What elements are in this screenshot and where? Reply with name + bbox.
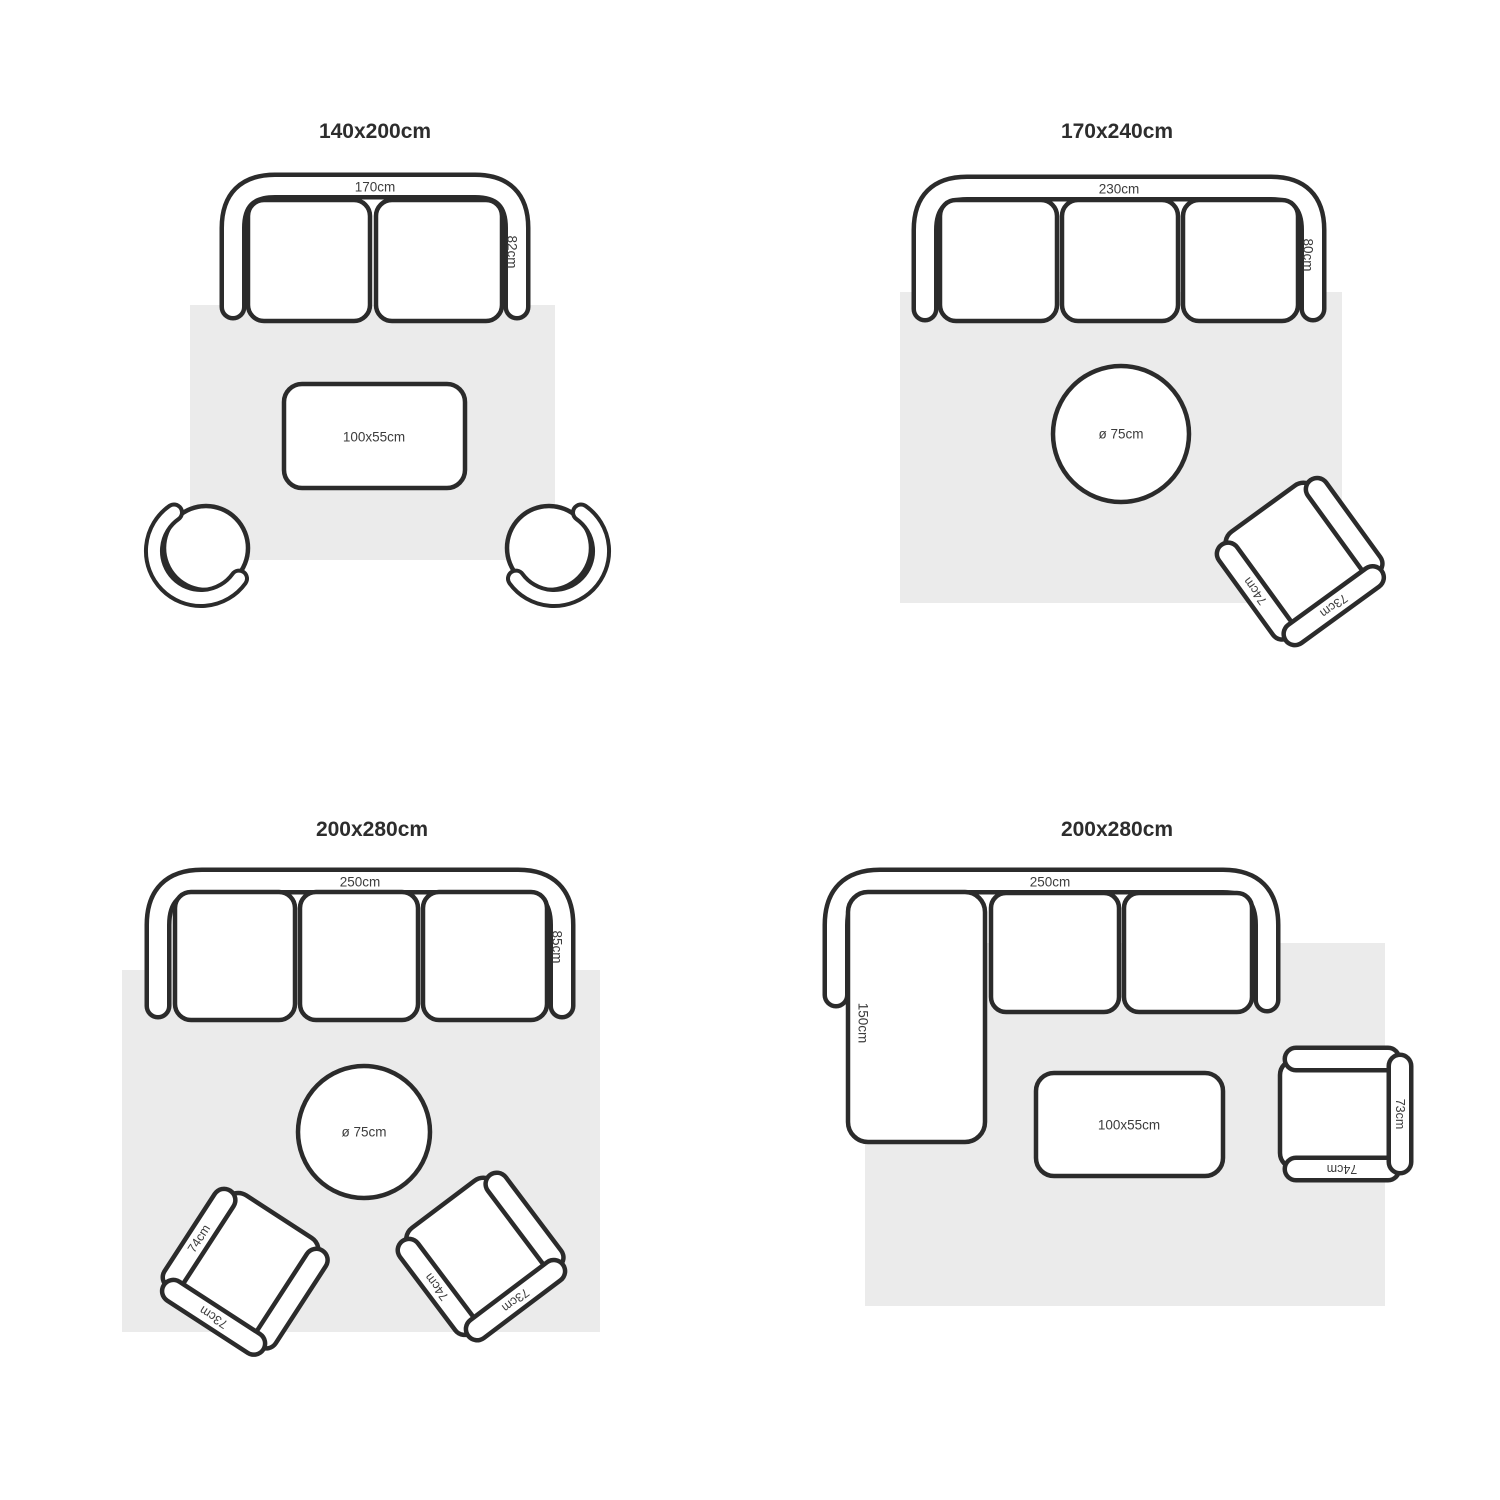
rug-size-guide-diagram: 140x200cm 170cm 82cm 100x55cm 170x240cm — [0, 0, 1500, 1500]
coffee-table: 100x55cm — [1036, 1073, 1223, 1176]
panel-140x200: 140x200cm 170cm 82cm 100x55cm — [154, 120, 601, 598]
table-size-label: ø 75cm — [1098, 427, 1143, 442]
panel-200x280-sofa: 200x280cm 250cm 85cm ø 75cm 74cm 73cm — [122, 818, 600, 1353]
size-title: 140x200cm — [319, 120, 431, 143]
seat-cushion — [248, 200, 370, 321]
panel-200x280-sectional: 200x280cm 250cm 150cm 100x55cm 74cm 73cm — [836, 818, 1407, 1306]
seat-cushion — [376, 200, 502, 321]
sofa-width-label: 250cm — [340, 875, 381, 890]
armchair: 74cm 73cm — [1280, 1059, 1407, 1176]
sofa-width-label: 250cm — [1030, 875, 1071, 890]
sofa-depth-label: 82cm — [505, 235, 520, 268]
seat-cushion — [300, 892, 418, 1020]
round-table: ø 75cm — [298, 1066, 430, 1198]
sofa-depth-label: 80cm — [1301, 238, 1316, 271]
sofa-width-label: 230cm — [1099, 182, 1140, 197]
table-size-label: ø 75cm — [341, 1125, 386, 1140]
size-title: 200x280cm — [316, 818, 428, 841]
chaise-depth-label: 150cm — [856, 1003, 871, 1044]
coffee-table: 100x55cm — [284, 384, 465, 488]
panel-170x240: 170x240cm 230cm 80cm ø 75cm 74cm 73cm — [900, 120, 1382, 648]
round-table: ø 75cm — [1053, 366, 1189, 502]
table-size-label: 100x55cm — [343, 430, 405, 445]
swivel-chair-left — [154, 506, 248, 598]
seat-cushion — [175, 892, 295, 1020]
seat-cushion — [423, 892, 547, 1020]
sofa-depth-label: 85cm — [550, 930, 565, 963]
armchair-arm-label: 74cm — [1327, 1162, 1358, 1176]
seat-cushion — [940, 200, 1057, 321]
sofa-3-seat: 230cm 80cm — [925, 182, 1316, 322]
diagram-svg: 140x200cm 170cm 82cm 100x55cm 170x240cm — [0, 0, 1500, 1500]
size-title: 170x240cm — [1061, 120, 1173, 143]
swivel-chair-right — [507, 506, 601, 598]
table-size-label: 100x55cm — [1098, 1118, 1160, 1133]
sofa-3-seat: 250cm 85cm — [158, 875, 565, 1021]
seat-cushion — [1183, 200, 1298, 321]
sofa-2-seat: 170cm 82cm — [233, 180, 520, 322]
armchair-seat — [1280, 1060, 1394, 1168]
size-title: 200x280cm — [1061, 818, 1173, 841]
sofa-width-label: 170cm — [355, 180, 396, 195]
seat-cushion — [1062, 200, 1178, 321]
seat-cushion — [991, 893, 1119, 1012]
armchair-back-label: 73cm — [1393, 1099, 1407, 1130]
seat-cushion — [1124, 893, 1252, 1012]
